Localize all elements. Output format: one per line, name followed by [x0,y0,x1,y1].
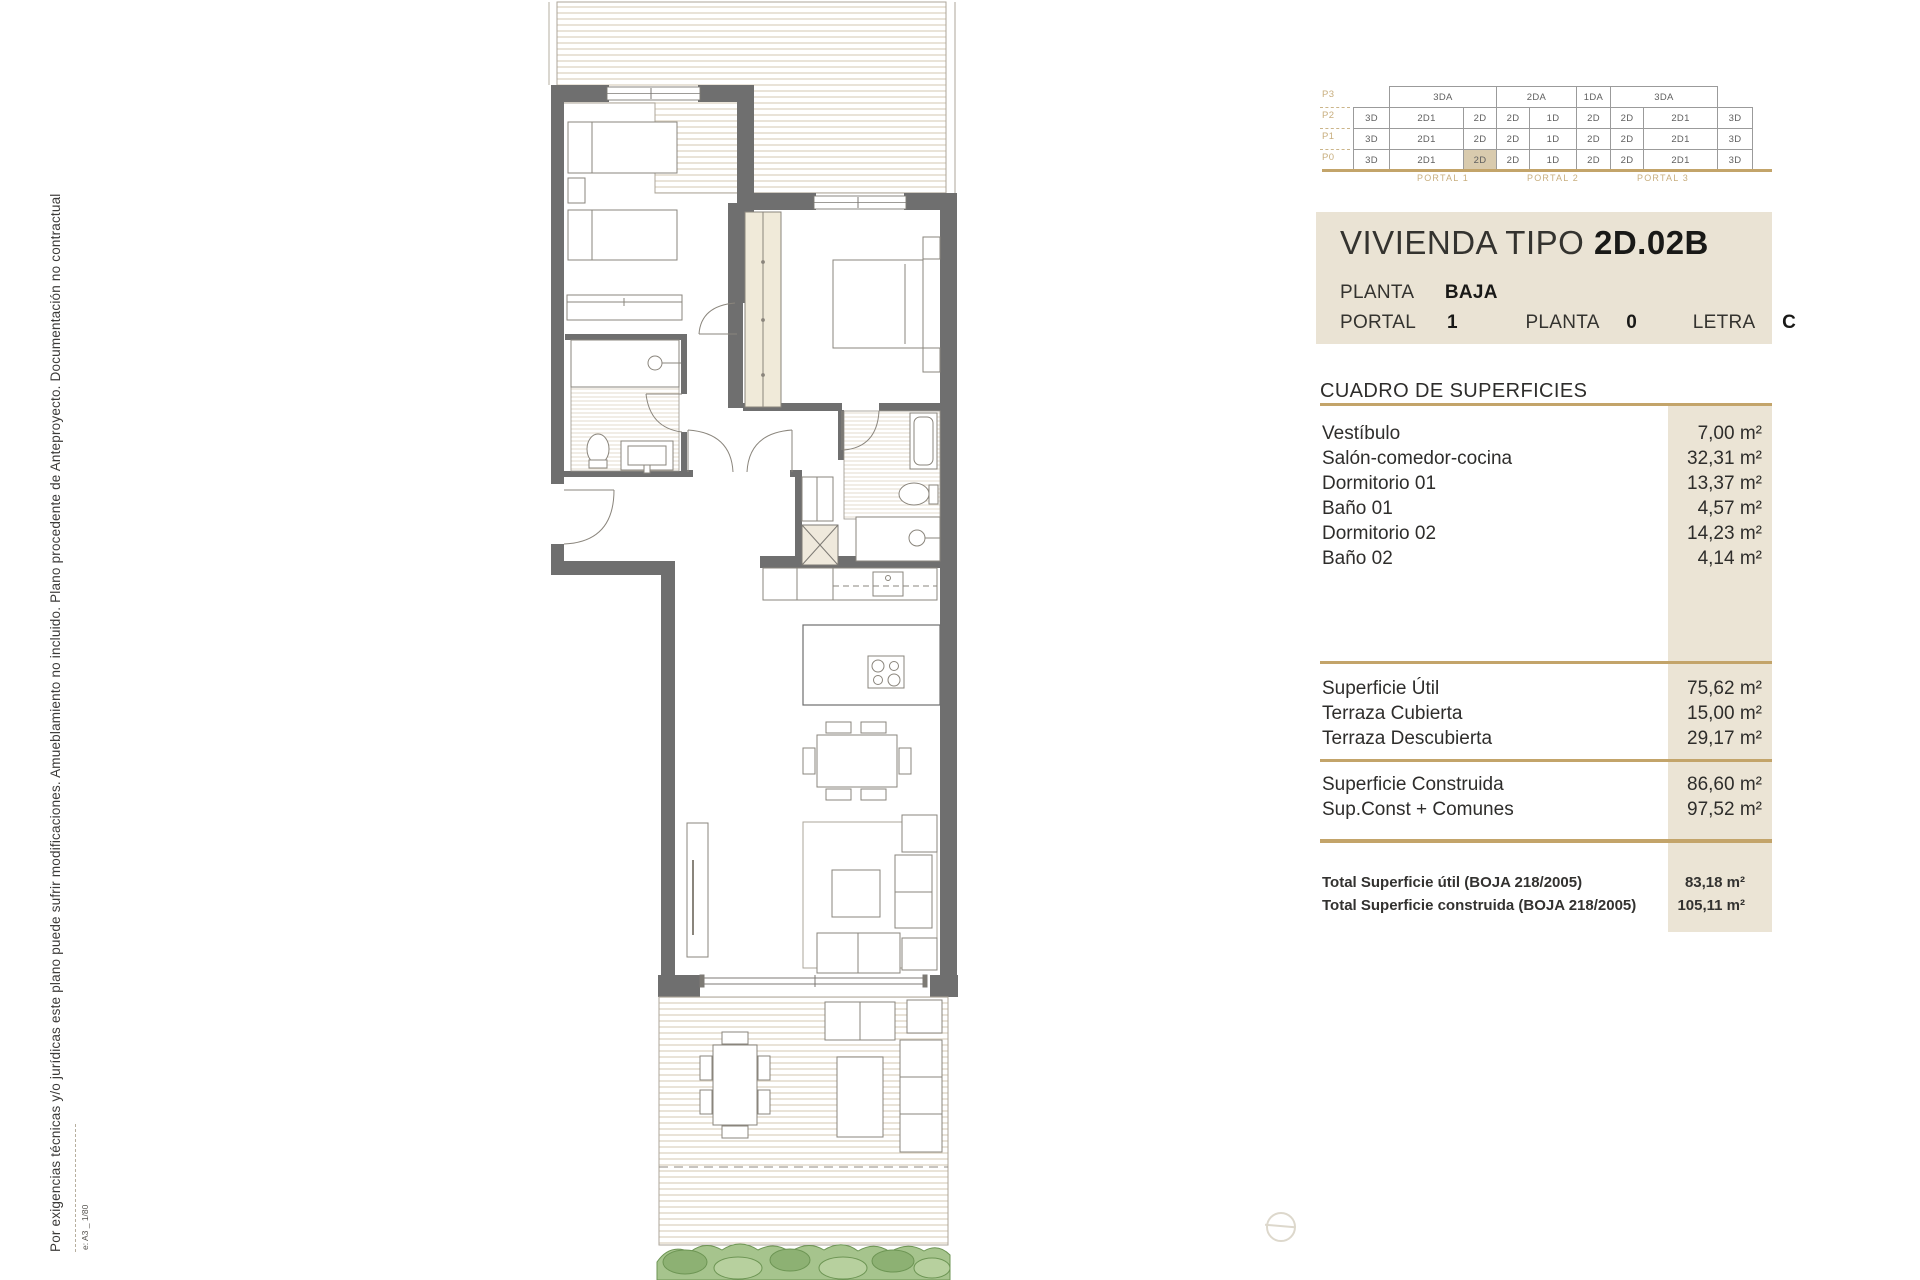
outdoor-daybed [837,1057,883,1137]
area-value: 86,60 m² [1687,774,1762,796]
surface-row: Baño 024,14 m² [1322,546,1762,571]
scale-divider-line [75,1124,76,1252]
surface-row: Terraza Descubierta29,17 m² [1322,726,1762,751]
portal-3-label: PORTAL 3 [1603,173,1723,183]
utility-column [802,477,838,565]
letra-value: C [1782,312,1796,333]
hedge [657,1244,950,1280]
floor-label-p0: P0 [1322,152,1348,163]
area-value: 4,14 m² [1698,548,1762,570]
floor-label-p2: P2 [1322,110,1348,121]
matrix-row-p1: 3D 2D1 2D 2D 1D 2D 2D 2D1 3D [1354,129,1753,150]
legal-note-vertical: Por exigencias técnicas y/o jurídicas es… [48,196,72,1252]
area-value: 14,23 m² [1687,523,1762,545]
watermark-circle-icon [1266,1212,1296,1242]
page-title: VIVIENDA TIPO 2D.02B [1340,224,1709,262]
floor-divider [1320,107,1350,108]
kitchen [763,568,940,705]
window-bedroom2 [607,87,700,100]
area-value: 7,00 m² [1698,423,1762,445]
outdoor-sofa [900,1040,942,1152]
portal-1-label: PORTAL 1 [1383,173,1503,183]
area-value: 29,17 m² [1687,728,1762,750]
total-row: Total Superficie construida (BOJA 218/20… [1322,893,1745,917]
scale-note: e: A3 _ 1/80 [80,1158,92,1250]
matrix-row-p3: 3DA 2DA 1DA 3DA [1354,87,1753,108]
outdoor-armchair [907,1000,942,1033]
surface-row: Vestíbulo7,00 m² [1322,421,1762,446]
totals-rule [1320,839,1772,843]
surface-row: Superficie Útil75,62 m² [1322,676,1762,701]
floor-label-p3: P3 [1322,89,1348,100]
building-matrix: 3DA 2DA 1DA 3DA 3D 2D1 2D 2D 1D 2D 2D 2D… [1353,86,1753,171]
dining-table [803,722,911,800]
floor-plan [540,0,960,1280]
surface-row: Dormitorio 0214,23 m² [1322,521,1762,546]
planta-value: BAJA [1445,282,1498,303]
matrix-underline [1322,169,1772,172]
surface-row: Baño 014,57 m² [1322,496,1762,521]
bathroom-2 [842,411,940,561]
unit-code: 2D.02B [1594,224,1709,261]
vestibule-doors [688,430,792,472]
bedroom-2 [567,122,682,320]
matrix-row-p0: 3D 2D1 2D 2D 1D 2D 2D 2D1 3D [1354,150,1753,171]
floor-divider [1320,128,1350,129]
planta-row: PLANTA BAJA [1340,282,1498,304]
terrace-bottom [659,997,948,1245]
portal-row: PORTAL 1 PLANTA 0 LETRA C [1340,312,1796,334]
area-value: 4,57 m² [1698,498,1762,520]
construida-rule [1320,759,1772,762]
living-area [687,815,937,973]
area-value: 32,31 m² [1687,448,1762,470]
subtotal-rule [1320,661,1772,664]
portal-2-label: PORTAL 2 [1493,173,1613,183]
surface-row: Salón-comedor-cocina32,31 m² [1322,446,1762,471]
area-value: 105,11 m² [1677,897,1745,914]
highlighted-unit-cell: 2D [1464,150,1497,171]
planta2-value: 0 [1626,312,1637,333]
window-bedroom1 [814,196,906,209]
area-value: 75,62 m² [1687,678,1762,700]
bedroom-1 [745,212,940,407]
total-row: Total Superficie útil (BOJA 218/2005)83,… [1322,870,1745,894]
entry-door [564,490,614,544]
outdoor-table [713,1045,757,1125]
area-value: 15,00 m² [1687,703,1762,725]
portal-value: 1 [1447,312,1458,333]
floor-divider [1320,149,1350,150]
matrix-row-p2: 3D 2D1 2D 2D 1D 2D 2D 2D1 3D [1354,108,1753,129]
sliding-door [700,975,927,987]
tv-sideboard [687,823,708,957]
floor-label-p1: P1 [1322,131,1348,142]
area-value: 97,52 m² [1687,799,1762,821]
area-value: 13,37 m² [1687,473,1762,495]
surface-row: Superficie Construida86,60 m² [1322,772,1762,797]
bathroom-1 [571,340,682,473]
surface-row: Sup.Const + Comunes97,52 m² [1322,797,1762,822]
surface-row: Terraza Cubierta15,00 m² [1322,701,1762,726]
surface-row: Dormitorio 0113,37 m² [1322,471,1762,496]
surfaces-header: CUADRO DE SUPERFICIES [1320,380,1587,403]
area-value: 83,18 m² [1685,874,1745,891]
surfaces-header-rule [1320,403,1772,406]
